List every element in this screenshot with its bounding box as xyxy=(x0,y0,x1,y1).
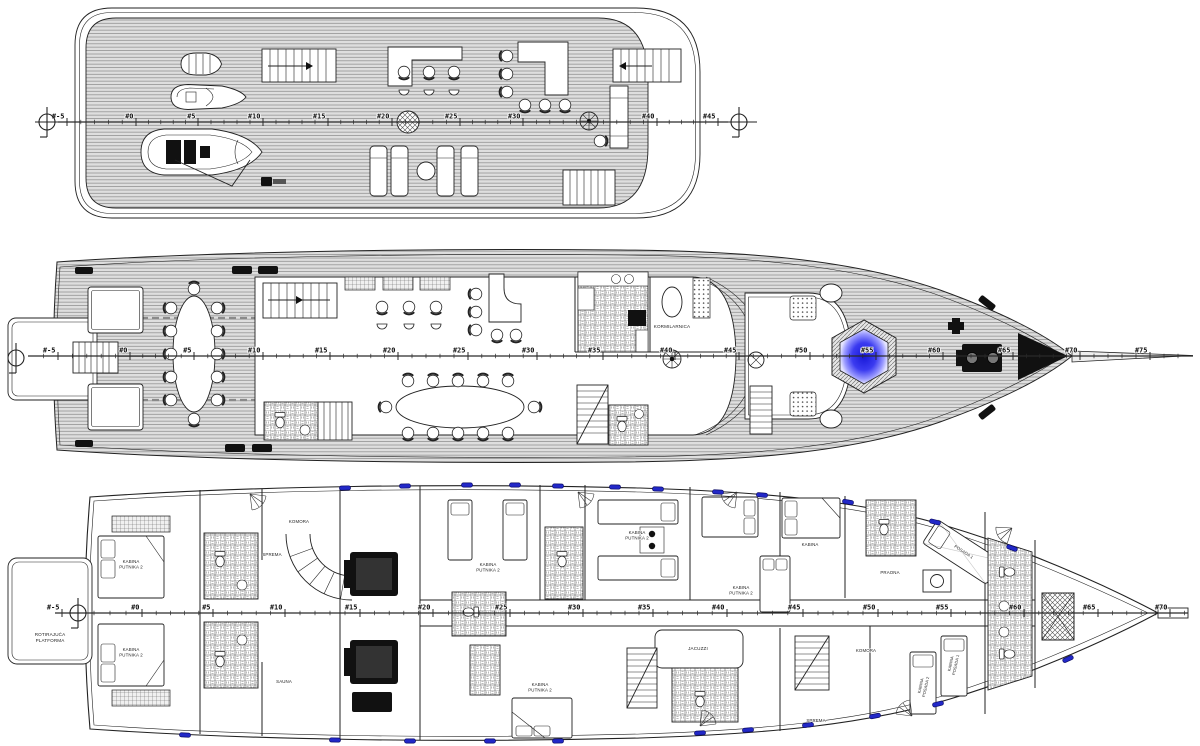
frame-label: #55 xyxy=(936,604,949,612)
room-label: ROTIRAJUĆAPLATFORMA xyxy=(35,631,66,643)
steering-wheel-icon xyxy=(580,112,598,130)
bathroom xyxy=(204,622,258,688)
frame-label: #45 xyxy=(724,347,737,355)
frame-label: #30 xyxy=(522,347,535,355)
ship-deck-plans-sheet: #-5#0#5#10#15#20#25#30#40#45 xyxy=(0,0,1200,746)
frame-label: #50 xyxy=(795,347,808,355)
frame-label: #55 xyxy=(861,347,874,355)
salon-window xyxy=(345,277,375,290)
main-deck-room-labels: KORMILARNICA xyxy=(654,324,691,329)
berth-hatch xyxy=(112,516,170,532)
frame-label: #-5 xyxy=(43,347,56,355)
side-table xyxy=(417,162,435,180)
frame-label: #-5 xyxy=(47,604,60,612)
frame-label: #65 xyxy=(998,347,1011,355)
stairs-to-lower-deck xyxy=(577,385,608,444)
bed-single xyxy=(503,500,527,560)
frame-label: #10 xyxy=(248,113,261,121)
day-head-wc xyxy=(264,402,318,440)
lower-wc xyxy=(609,405,648,445)
stairs-main-port xyxy=(263,283,337,318)
stairs-main-starboard xyxy=(318,402,352,440)
stairs-sun-deck-starboard xyxy=(563,170,615,205)
frame-label: #70 xyxy=(1065,347,1078,355)
room-label: KABINA xyxy=(802,542,819,547)
bed-double xyxy=(760,556,790,612)
room-label: SAUNA xyxy=(276,679,292,684)
frame-label: #10 xyxy=(270,604,283,612)
skylight-hatch xyxy=(790,392,816,416)
frame-label: #5 xyxy=(202,604,210,612)
bed-double xyxy=(782,498,840,538)
bed-single xyxy=(598,556,678,580)
frame-label: #5 xyxy=(183,347,191,355)
stove xyxy=(628,310,646,326)
room-label: KOMORA xyxy=(289,519,309,524)
room-label: KOMORA xyxy=(856,648,876,653)
frame-label: #20 xyxy=(383,347,396,355)
berth-hatch xyxy=(112,690,170,706)
room-label: PRAONA xyxy=(880,570,899,575)
frame-label: #45 xyxy=(788,604,801,612)
dinghy xyxy=(181,53,222,75)
stern-boarding-steps xyxy=(73,342,118,373)
frame-label: #70 xyxy=(1155,604,1168,612)
frame-label: #65 xyxy=(1083,604,1096,612)
stairs-sun-deck-fwd xyxy=(613,49,681,82)
frame-label: #25 xyxy=(445,113,458,121)
frame-label: #25 xyxy=(453,347,466,355)
frame-label: #50 xyxy=(863,604,876,612)
stairs-lower-mid xyxy=(627,648,657,708)
frame-label: #35 xyxy=(588,347,601,355)
frame-label: #20 xyxy=(418,604,431,612)
frame-label: #30 xyxy=(568,604,581,612)
stairs-sun-deck-aft xyxy=(262,49,336,82)
bed-single xyxy=(598,500,678,524)
frame-label: #40 xyxy=(642,113,655,121)
bathroom xyxy=(204,533,258,599)
salon-window xyxy=(420,277,450,290)
main-deck-plan: #-5#0#5#10#15#20#25#30#35#40#45#50#55#60… xyxy=(8,250,1193,463)
bathroom xyxy=(866,500,916,556)
bathroom xyxy=(545,527,583,599)
room-label: SPREMA xyxy=(806,718,825,723)
anchor-windlass xyxy=(956,344,1002,372)
bed-single xyxy=(448,500,472,560)
deck-hatch-oval xyxy=(820,410,842,428)
washing-machine xyxy=(923,570,951,592)
skylight-hatch xyxy=(790,296,816,320)
frame-label: #25 xyxy=(495,604,508,612)
stairs-lower-fwd xyxy=(795,636,829,690)
room-label: KORMILARNICA xyxy=(654,324,691,329)
frame-label: #0 xyxy=(125,113,133,121)
deck-hatch-oval xyxy=(820,284,842,302)
frame-label: #45 xyxy=(703,113,716,121)
sun-deck-plan: #-5#0#5#10#15#20#25#30#40#45 xyxy=(35,8,757,218)
plan-drawing: #-5#0#5#10#15#20#25#30#40#45 xyxy=(0,0,1200,746)
lower-deck-plan: #-5#0#5#10#15#20#25#30#35#40#45#50#55#60… xyxy=(8,483,1188,743)
frame-label: #40 xyxy=(712,604,725,612)
frame-label: #40 xyxy=(660,347,673,355)
room-label: SPREMA xyxy=(262,552,281,557)
frame-label: #60 xyxy=(1009,604,1022,612)
frame-label: #-5 xyxy=(52,113,65,121)
frame-label: #30 xyxy=(508,113,521,121)
generator xyxy=(352,692,392,712)
engine-port xyxy=(344,552,398,596)
frame-label: #5 xyxy=(187,113,195,121)
bed-double xyxy=(512,698,572,738)
frame-label: #0 xyxy=(131,604,139,612)
bathroom xyxy=(470,645,500,695)
frame-label: #15 xyxy=(345,604,358,612)
room-label: JACUZZI xyxy=(688,646,708,651)
salon-window xyxy=(383,277,413,290)
frame-label: #75 xyxy=(1135,347,1148,355)
frame-label: #60 xyxy=(928,347,941,355)
bed-double xyxy=(702,497,758,537)
frame-label: #20 xyxy=(377,113,390,121)
engine-starboard xyxy=(344,640,398,684)
frame-label: #10 xyxy=(248,347,261,355)
frame-label: #15 xyxy=(315,347,328,355)
frame-label: #35 xyxy=(638,604,651,612)
frame-label: #0 xyxy=(119,347,127,355)
frame-label: #15 xyxy=(313,113,326,121)
